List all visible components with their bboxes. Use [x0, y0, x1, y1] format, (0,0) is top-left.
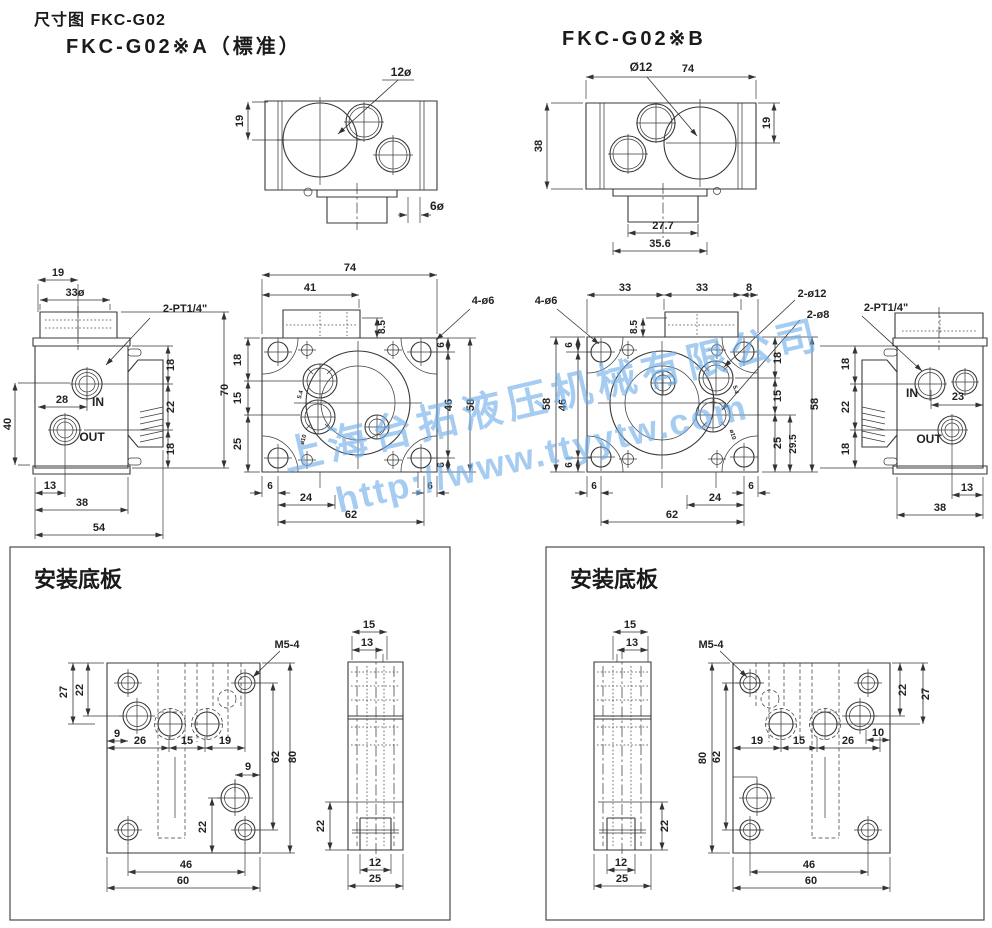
- dim-label: 13: [361, 637, 373, 649]
- dim-label: 6: [564, 462, 575, 468]
- dim-label: 33ø: [66, 287, 85, 299]
- panel-b-border: [546, 547, 984, 920]
- dim-label: IN: [906, 386, 918, 400]
- dim-label: 23: [952, 391, 964, 403]
- dim-label: 6: [436, 462, 447, 468]
- dim-label: 27: [920, 688, 932, 700]
- dim-label: 15: [793, 735, 805, 747]
- dim-label: 18: [165, 443, 177, 455]
- dim-label: 13: [44, 480, 56, 492]
- dim-label: 25: [369, 873, 381, 885]
- dim-label: 8: [746, 282, 752, 294]
- dim-label: 26: [134, 735, 146, 747]
- dim-label: 2-ø8: [807, 309, 830, 321]
- dim-label: IN: [92, 395, 104, 409]
- dim-label: ø10: [300, 433, 309, 445]
- dim-label: 54: [93, 522, 106, 534]
- dim-label: 41: [304, 282, 316, 294]
- dim-label: M5-4: [274, 639, 300, 651]
- dim-label: 19: [219, 735, 231, 747]
- dim-label: 24: [300, 492, 313, 504]
- dim-label: 13: [961, 482, 973, 494]
- dim-label: 46: [803, 859, 815, 871]
- dim-label: 38: [533, 140, 545, 152]
- dim-label: 19: [52, 267, 64, 279]
- dim-label: 33: [619, 282, 631, 294]
- dim-label: 33: [696, 282, 708, 294]
- dim-label: 12: [369, 857, 381, 869]
- dim-label: 15: [363, 619, 375, 631]
- dim-label: 12: [615, 857, 627, 869]
- dim-label: 22: [197, 821, 209, 833]
- dim-label: ø10: [728, 429, 737, 441]
- dim-label: 22: [659, 820, 671, 832]
- dim-label: 27.7: [652, 220, 673, 232]
- dim-label: 6: [564, 342, 575, 348]
- dim-label: 18: [772, 352, 784, 364]
- dim-label: 2-ø12: [798, 288, 827, 300]
- dim-label: 9: [245, 761, 251, 773]
- mounting-plate-a-front: [68, 651, 295, 892]
- dim-label: 62: [666, 509, 678, 521]
- dim-label: 80: [287, 751, 299, 763]
- dim-label: 6ø: [430, 199, 445, 213]
- dim-label: 18: [840, 358, 852, 370]
- dimension-drawing-page: 尺寸图 FKC-G02 FKC-G02※A（標准） FKC-G02※B 安装底板…: [0, 0, 992, 928]
- top-view-a: [248, 80, 437, 230]
- dim-label: 22: [897, 684, 909, 696]
- dim-label: 6: [591, 481, 597, 492]
- dim-label: 25: [232, 438, 244, 450]
- dim-label: Ø12: [630, 60, 653, 74]
- dim-label: OUT: [916, 432, 942, 446]
- dim-label: 6: [748, 481, 754, 492]
- dim-label: 62: [270, 751, 282, 763]
- dim-label: 25: [772, 437, 784, 449]
- dim-label: 35.6: [649, 238, 670, 250]
- dim-label: 26: [842, 735, 854, 747]
- dim-label: 4-ø6: [535, 295, 558, 307]
- dim-label: OUT: [79, 430, 105, 444]
- dim-label: M5-4: [698, 639, 724, 651]
- mounting-plate-a-side: [325, 632, 403, 890]
- dim-label: 38: [76, 497, 88, 509]
- dim-label: 15: [232, 392, 244, 404]
- dim-label: 80: [697, 752, 709, 764]
- dim-label: 74: [344, 262, 357, 274]
- dim-label: 2-PT1/4": [864, 302, 908, 314]
- dim-label: 25: [616, 873, 628, 885]
- panel-a-border: [10, 547, 450, 920]
- dim-label: 46: [443, 399, 455, 411]
- dim-label: 60: [805, 875, 817, 887]
- dim-label: 15: [772, 390, 784, 402]
- dim-label: 46: [557, 399, 569, 411]
- dim-label: 74: [682, 63, 695, 75]
- dim-label: 5.4: [731, 385, 739, 395]
- dim-label: 19: [761, 117, 773, 129]
- dim-label: 12ø: [391, 65, 412, 79]
- dim-label: 15: [624, 619, 636, 631]
- dim-label: 62: [345, 509, 357, 521]
- dim-label: 15: [181, 735, 193, 747]
- dim-label: 22: [165, 401, 177, 413]
- dim-label: 18: [232, 354, 244, 366]
- dim-label: 22: [315, 820, 327, 832]
- dim-label: 18: [840, 443, 852, 455]
- dim-label: 10: [872, 727, 884, 739]
- dim-label: 4-ø6: [472, 295, 495, 307]
- dim-label: 58: [809, 398, 821, 410]
- dim-label: 18: [165, 359, 177, 371]
- dim-label: 19: [234, 115, 246, 127]
- dim-label: 46: [180, 859, 192, 871]
- dim-label: 6: [427, 481, 433, 492]
- dim-label: 6: [436, 342, 447, 348]
- dim-label: 60: [177, 875, 189, 887]
- cad-drawing: 12ø196øØ1274381927.735.61933ø2-PT1/4"28I…: [0, 0, 992, 928]
- dim-label: 22: [74, 684, 86, 696]
- mounting-plate-b-front: [708, 651, 928, 892]
- mounting-plate-b-side: [594, 632, 668, 890]
- side-view-a: [15, 280, 229, 539]
- dim-label: 40: [2, 418, 14, 430]
- dim-label: 19: [751, 735, 763, 747]
- dim-label: 58: [465, 399, 477, 411]
- dim-label: 8.5: [377, 320, 388, 334]
- dim-label: 22: [840, 401, 852, 413]
- dim-label: 70: [219, 384, 231, 396]
- dim-label: 24: [709, 492, 722, 504]
- dim-label: 5.4: [297, 389, 305, 399]
- dim-label: 27: [58, 686, 70, 698]
- dim-label: 58: [541, 398, 553, 410]
- dim-labels-layer: 12ø196øØ1274381927.735.61933ø2-PT1/4"28I…: [2, 60, 973, 887]
- dim-label: 38: [934, 502, 946, 514]
- dim-label: 8.5: [629, 320, 640, 334]
- dim-label: 2-PT1/4": [163, 303, 207, 315]
- dim-label: 28: [56, 394, 68, 406]
- front-view-b: [550, 295, 818, 526]
- dim-label: 6: [267, 481, 273, 492]
- dim-label: 13: [626, 637, 638, 649]
- dim-label: 62: [711, 751, 723, 763]
- dim-label: 29.5: [788, 434, 799, 454]
- dim-label: 9: [114, 728, 120, 740]
